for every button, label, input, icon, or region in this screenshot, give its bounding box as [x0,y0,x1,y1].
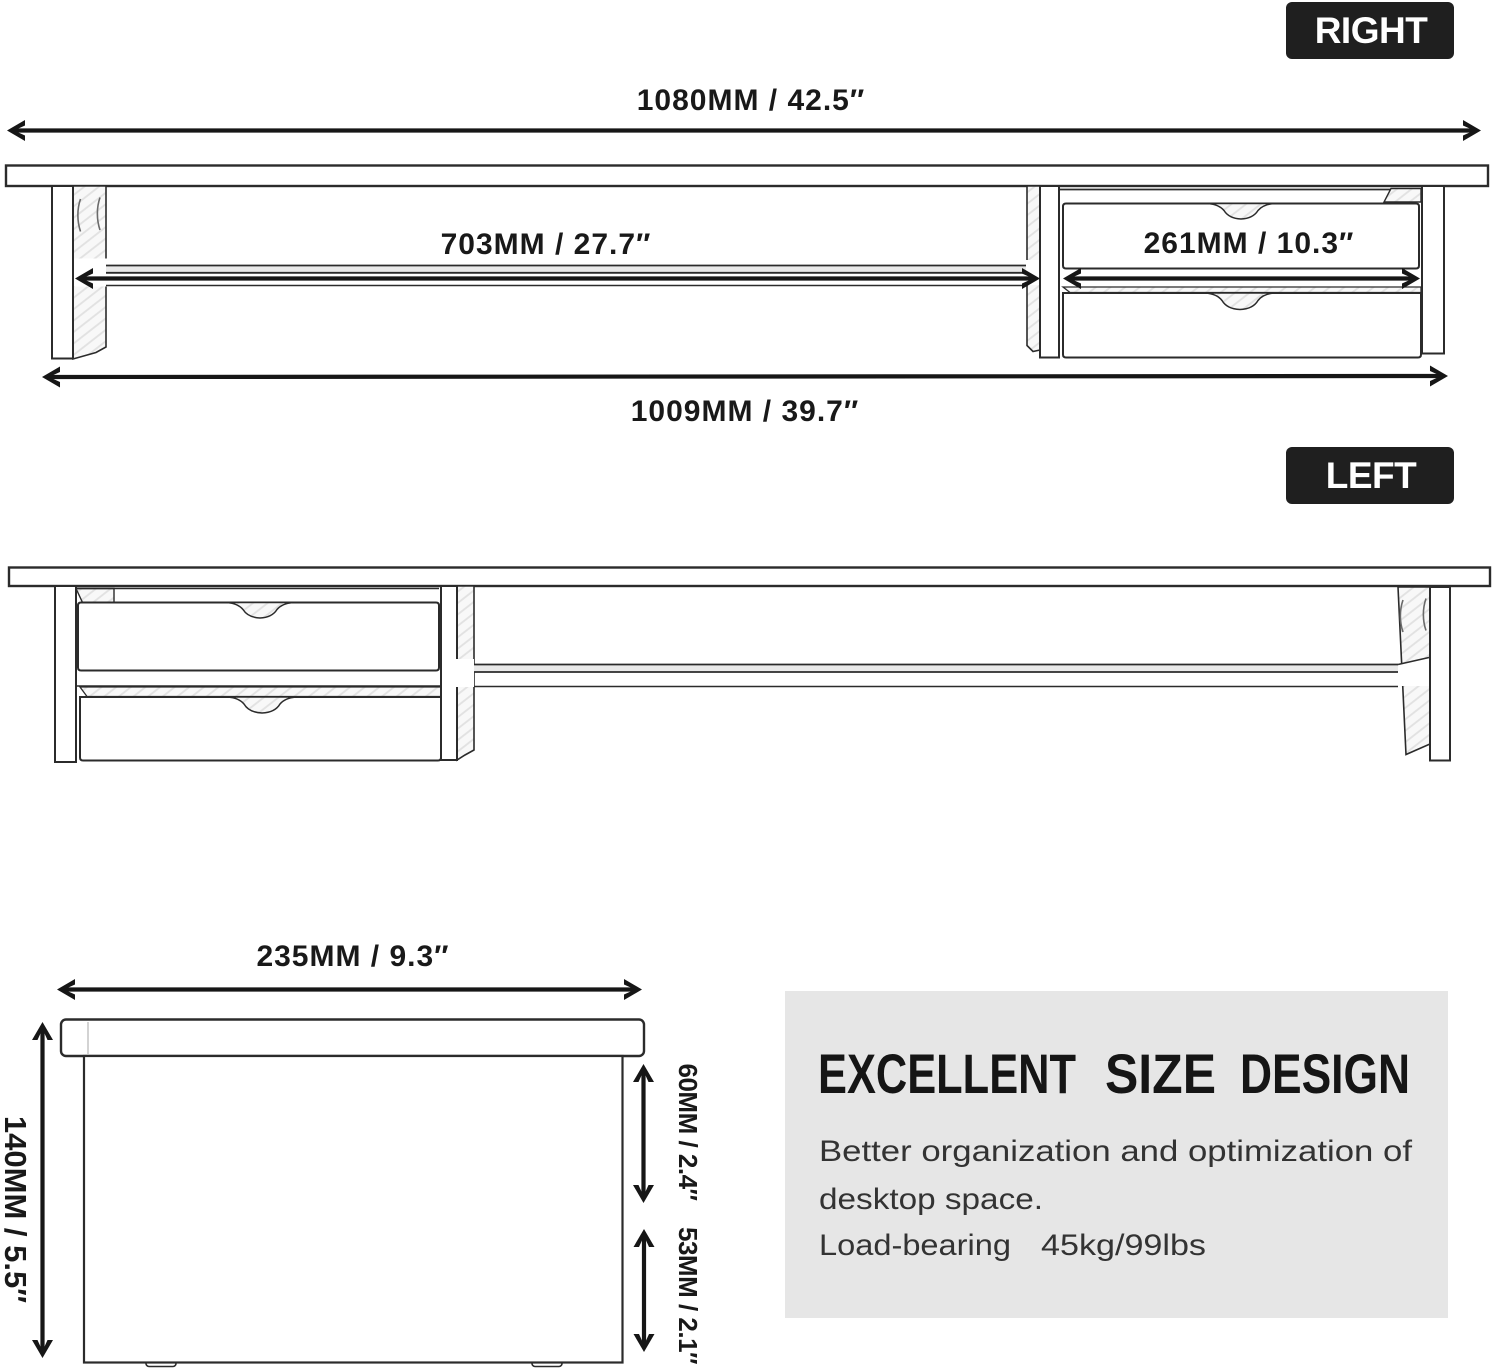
svg-text:desktop space.: desktop space. [819,1183,1043,1216]
svg-text:53MM / 2.1″: 53MM / 2.1″ [673,1227,703,1364]
svg-text:60MM / 2.4″: 60MM / 2.4″ [673,1063,703,1200]
svg-text:140MM / 5.5″: 140MM / 5.5″ [0,1116,33,1303]
svg-text:RIGHT: RIGHT [1315,10,1429,51]
svg-text:235MM / 9.3″: 235MM / 9.3″ [256,940,449,973]
svg-text:261MM / 10.3″: 261MM / 10.3″ [1144,227,1355,260]
svg-text:703MM / 27.7″: 703MM / 27.7″ [441,228,652,261]
svg-text:1080MM / 42.5″: 1080MM / 42.5″ [637,84,865,117]
svg-text:LEFT: LEFT [1326,455,1417,496]
svg-text:Better organization and optimi: Better organization and optimization of [819,1135,1413,1168]
svg-text:1009MM / 39.7″: 1009MM / 39.7″ [631,395,859,428]
svg-text:EXCELLENTSIZEDESIGN: EXCELLENTSIZEDESIGN [818,1042,1410,1105]
